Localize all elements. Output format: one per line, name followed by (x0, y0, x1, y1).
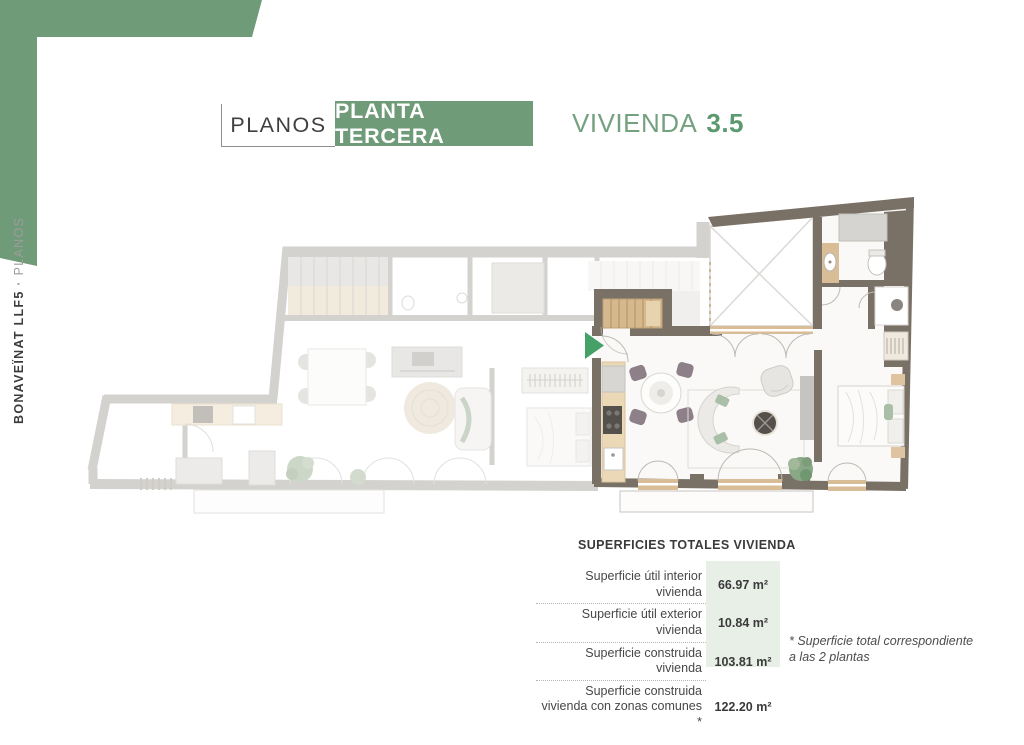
areas-table: Superficie útil interior vivienda 66.97 … (536, 566, 784, 734)
table-title: SUPERFICIES TOTALES VIVIENDA (578, 538, 796, 552)
table-row: Superficie útil interior vivienda 66.97 … (536, 566, 784, 604)
kitchen (602, 362, 625, 482)
patio-lightwell (710, 217, 813, 326)
row-value: 103.81 m² (706, 655, 780, 669)
ghost-wardrobe (288, 257, 388, 315)
row-value: 122.20 m² (706, 700, 780, 714)
row-label: Superficie construida vivienda (536, 643, 706, 681)
ghost-dining (298, 349, 376, 405)
ghost-bedroom (522, 368, 591, 466)
terrace (620, 491, 813, 512)
unit-3-5 (585, 197, 914, 512)
row-value: 66.97 m² (706, 578, 780, 592)
closet (884, 332, 908, 360)
ghost-rug (404, 382, 456, 434)
row-label: Superficie construida vivienda con zonas… (536, 681, 706, 734)
table-row: Superficie construida vivienda 103.81 m² (536, 643, 784, 681)
row-label: Superficie útil exterior vivienda (536, 604, 706, 642)
stairs (603, 299, 662, 328)
brochure-page: BONAVEÏNAT LLF5 · PLANOS PLANOS PLANTA T… (0, 0, 1024, 745)
row-label: Superficie útil interior vivienda (536, 566, 706, 604)
table-footnote: * Superficie total correspondiente a las… (789, 633, 979, 666)
row-value: 10.84 m² (706, 616, 780, 630)
table-row: Superficie construida vivienda con zonas… (536, 681, 784, 734)
ghost-kitchen (172, 404, 282, 425)
table-row: Superficie útil exterior vivienda 10.84 … (536, 604, 784, 642)
coffee-table (752, 410, 778, 436)
